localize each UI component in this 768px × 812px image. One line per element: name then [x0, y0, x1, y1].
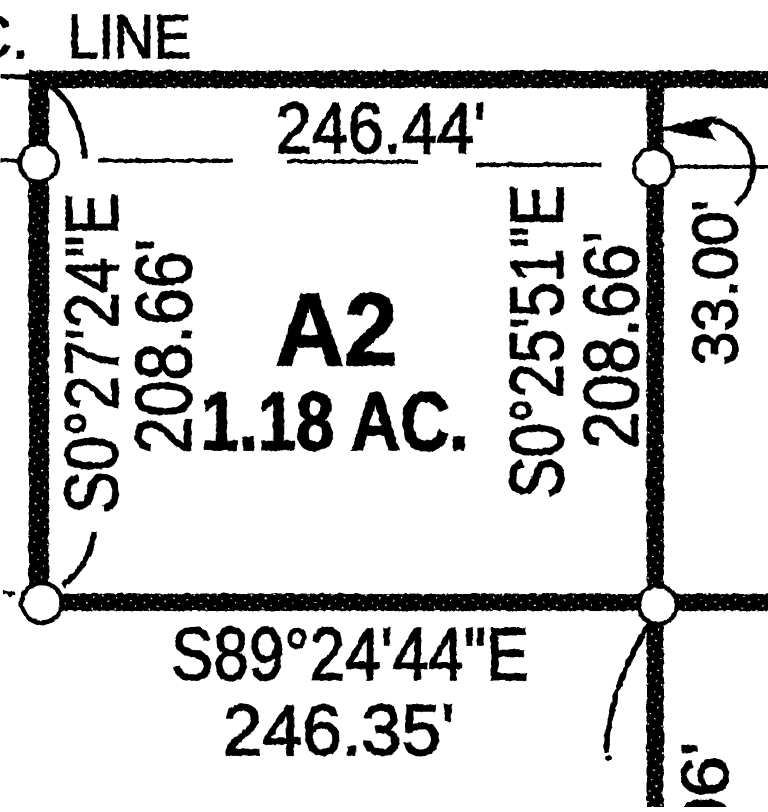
svg-text:1.18 AC.: 1.18 AC.	[200, 374, 468, 467]
svg-text:33.00': 33.00'	[680, 199, 750, 365]
svg-text:06': 06'	[667, 741, 741, 807]
svg-text:LINE: LINE	[67, 2, 190, 70]
svg-text:208.66': 208.66'	[566, 230, 654, 448]
svg-text:246.44': 246.44'	[275, 89, 485, 168]
svg-text:A2: A2	[274, 272, 397, 386]
svg-text:246.35': 246.35'	[222, 691, 454, 770]
svg-text:S89°24'44"E: S89°24'44"E	[170, 612, 528, 695]
svg-text:208.66': 208.66'	[118, 238, 207, 453]
svg-text:C.: C.	[0, 2, 28, 70]
